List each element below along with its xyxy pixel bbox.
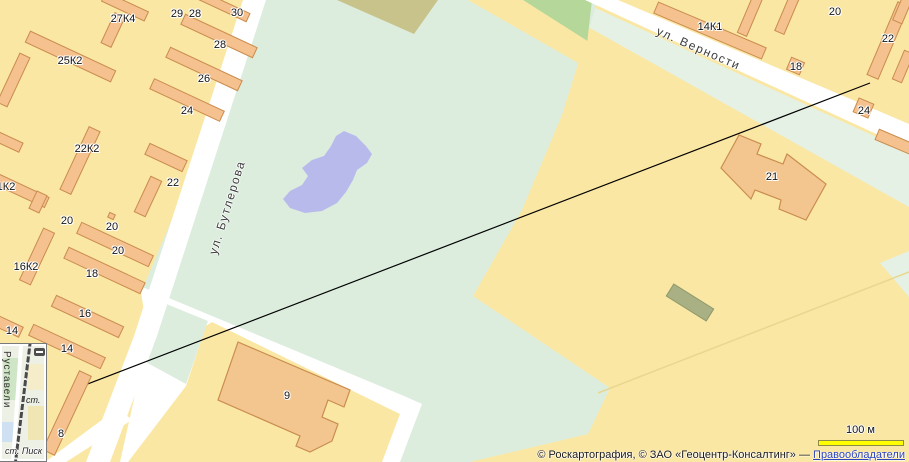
attribution-text: © Роскартография, © ЗАО «Геоцентр-Консал… [537,449,813,461]
building-number-label: 14К1 [698,21,723,33]
building-number-label: 26 [198,73,210,85]
building-number-label: 1К2 [0,181,15,193]
building-number-label: 9 [284,390,290,402]
building-number-label: 16К2 [14,261,39,273]
inset-station-label-short: ст. [26,395,40,405]
building-number-label: 24 [181,105,193,117]
building-number-label: 20 [61,215,73,227]
building-number-label: 20 [112,245,124,257]
building-number-label: 20 [106,221,118,233]
building-number-label: 14 [6,325,18,337]
parcel-boundary-line [598,272,909,393]
building-number-label: 20 [829,6,841,18]
map-terrain [0,0,909,462]
building-number-label: 28 [189,8,201,20]
building-number-label: 28 [214,39,226,51]
inset-zoom-out-button[interactable] [34,348,45,356]
inset-street-label-rustaveli: Руставели [1,351,12,408]
building-number-label: 22 [882,33,894,45]
scale-bar [818,440,904,446]
building-number-label: 22 [167,177,179,189]
building-number-label: 18 [86,268,98,280]
building-number-label: 14 [61,343,73,355]
building-number-label: 21 [766,171,778,183]
scale-label: 100 м [846,424,875,436]
inset-minimap[interactable]: Руставели ст. ст. Писк [0,343,47,462]
building-number-label: 29 [171,8,183,20]
building-number-label: 27К4 [111,13,136,25]
inset-station-label: ст. Писк [5,446,42,456]
building-number-label: 25К2 [58,55,83,67]
rights-holders-link[interactable]: Правообладатели [813,449,905,461]
attribution: © Роскартография, © ЗАО «Геоцентр-Консал… [537,449,905,461]
building-number-label: 24 [858,105,870,117]
inset-block-patch [27,364,44,390]
building-number-label: 16 [79,308,91,320]
building-number-label: 8 [58,428,64,440]
building-number-label: 18 [790,61,802,73]
inset-block-patch [28,406,44,440]
map-canvas[interactable]: 27К429283025К228262422К21К22220202016К21… [0,0,909,462]
building-number-label: 22К2 [75,143,100,155]
building-number-label: 30 [231,7,243,19]
